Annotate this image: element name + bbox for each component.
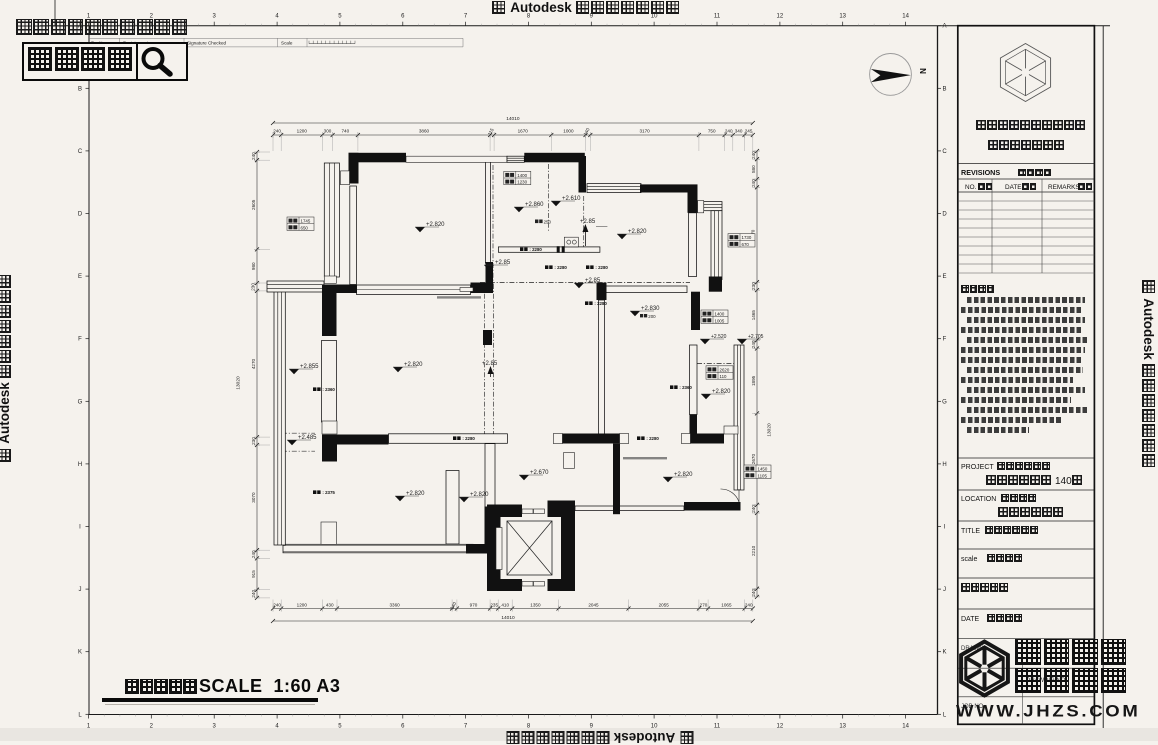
svg-text:REMARKS: REMARKS bbox=[1048, 184, 1080, 191]
svg-text:DATE: DATE bbox=[961, 616, 979, 623]
svg-text:REVISIONS: REVISIONS bbox=[961, 168, 1000, 177]
svg-text:NO.: NO. bbox=[965, 184, 977, 191]
svg-text:PROJECT: PROJECT bbox=[961, 464, 994, 471]
svg-text:LOCATION: LOCATION bbox=[961, 496, 996, 503]
svg-text:scale: scale bbox=[961, 556, 977, 563]
svg-text:TITLE: TITLE bbox=[961, 528, 980, 535]
